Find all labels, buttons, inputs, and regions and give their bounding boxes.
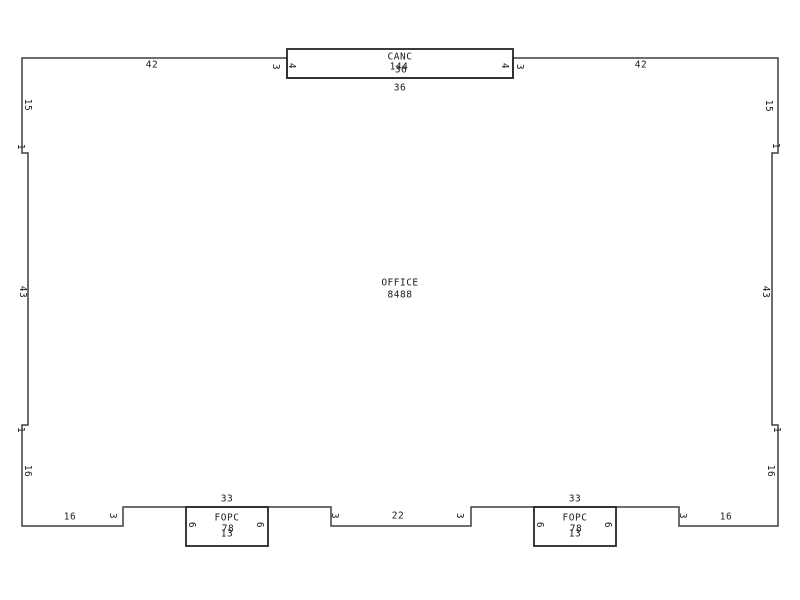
dim-canc-below-36: 36 [394, 83, 406, 93]
dim-right-upper-15: 15 [763, 100, 773, 112]
dim-right-jog-upper-1: 1 [770, 143, 780, 149]
floorplan-canvas: OFFICE 8488 CANC 144 36 4 4 36 42 42 3 3… [0, 0, 800, 600]
canc-room-width: 36 [395, 65, 407, 75]
dim-right-lower-16: 16 [765, 465, 775, 477]
dim-right-mid-43: 43 [760, 286, 770, 298]
dim-left-jog-lower-1: 1 [15, 427, 25, 433]
dim-left-lower-16: 16 [22, 465, 32, 477]
dim-bottom-jog-c-3: 3 [454, 513, 464, 519]
dim-bottom-jog-a-3: 3 [107, 513, 117, 519]
dim-porch1-33: 33 [221, 494, 233, 504]
dim-canc-right-4: 4 [499, 63, 509, 69]
dim-porch2-33: 33 [569, 494, 581, 504]
dim-canc-left-4: 4 [286, 63, 296, 69]
dim-fopc1-left-6: 6 [186, 522, 196, 528]
office-room-area: 8488 [388, 290, 413, 300]
fopc1-room-name: FOPC [215, 513, 240, 523]
office-room-name: OFFICE [381, 278, 418, 288]
dim-bottom-mid-22: 22 [392, 511, 404, 521]
dim-fopc2-left-6: 6 [534, 522, 544, 528]
dim-left-jog-upper-1: 1 [15, 144, 25, 150]
dim-top-right-42: 42 [635, 60, 647, 70]
dim-bottom-jog-b-3: 3 [329, 513, 339, 519]
dim-fopc2-right-6: 6 [602, 522, 612, 528]
dim-fopc1-right-6: 6 [254, 522, 264, 528]
fopc2-room-name: FOPC [563, 513, 588, 523]
dim-bottom-left-16: 16 [64, 512, 76, 522]
fopc2-room-width: 13 [569, 529, 581, 539]
dim-right-jog-lower-1: 1 [771, 427, 781, 433]
fopc1-room-width: 13 [221, 529, 233, 539]
dim-top-left-42: 42 [146, 60, 158, 70]
dim-left-upper-15: 15 [22, 99, 32, 111]
dim-left-mid-43: 43 [17, 286, 27, 298]
dim-bottom-right-16: 16 [720, 512, 732, 522]
dim-bottom-jog-d-3: 3 [677, 513, 687, 519]
dim-top-jog-left-3: 3 [270, 64, 280, 70]
dim-top-jog-right-3: 3 [514, 64, 524, 70]
